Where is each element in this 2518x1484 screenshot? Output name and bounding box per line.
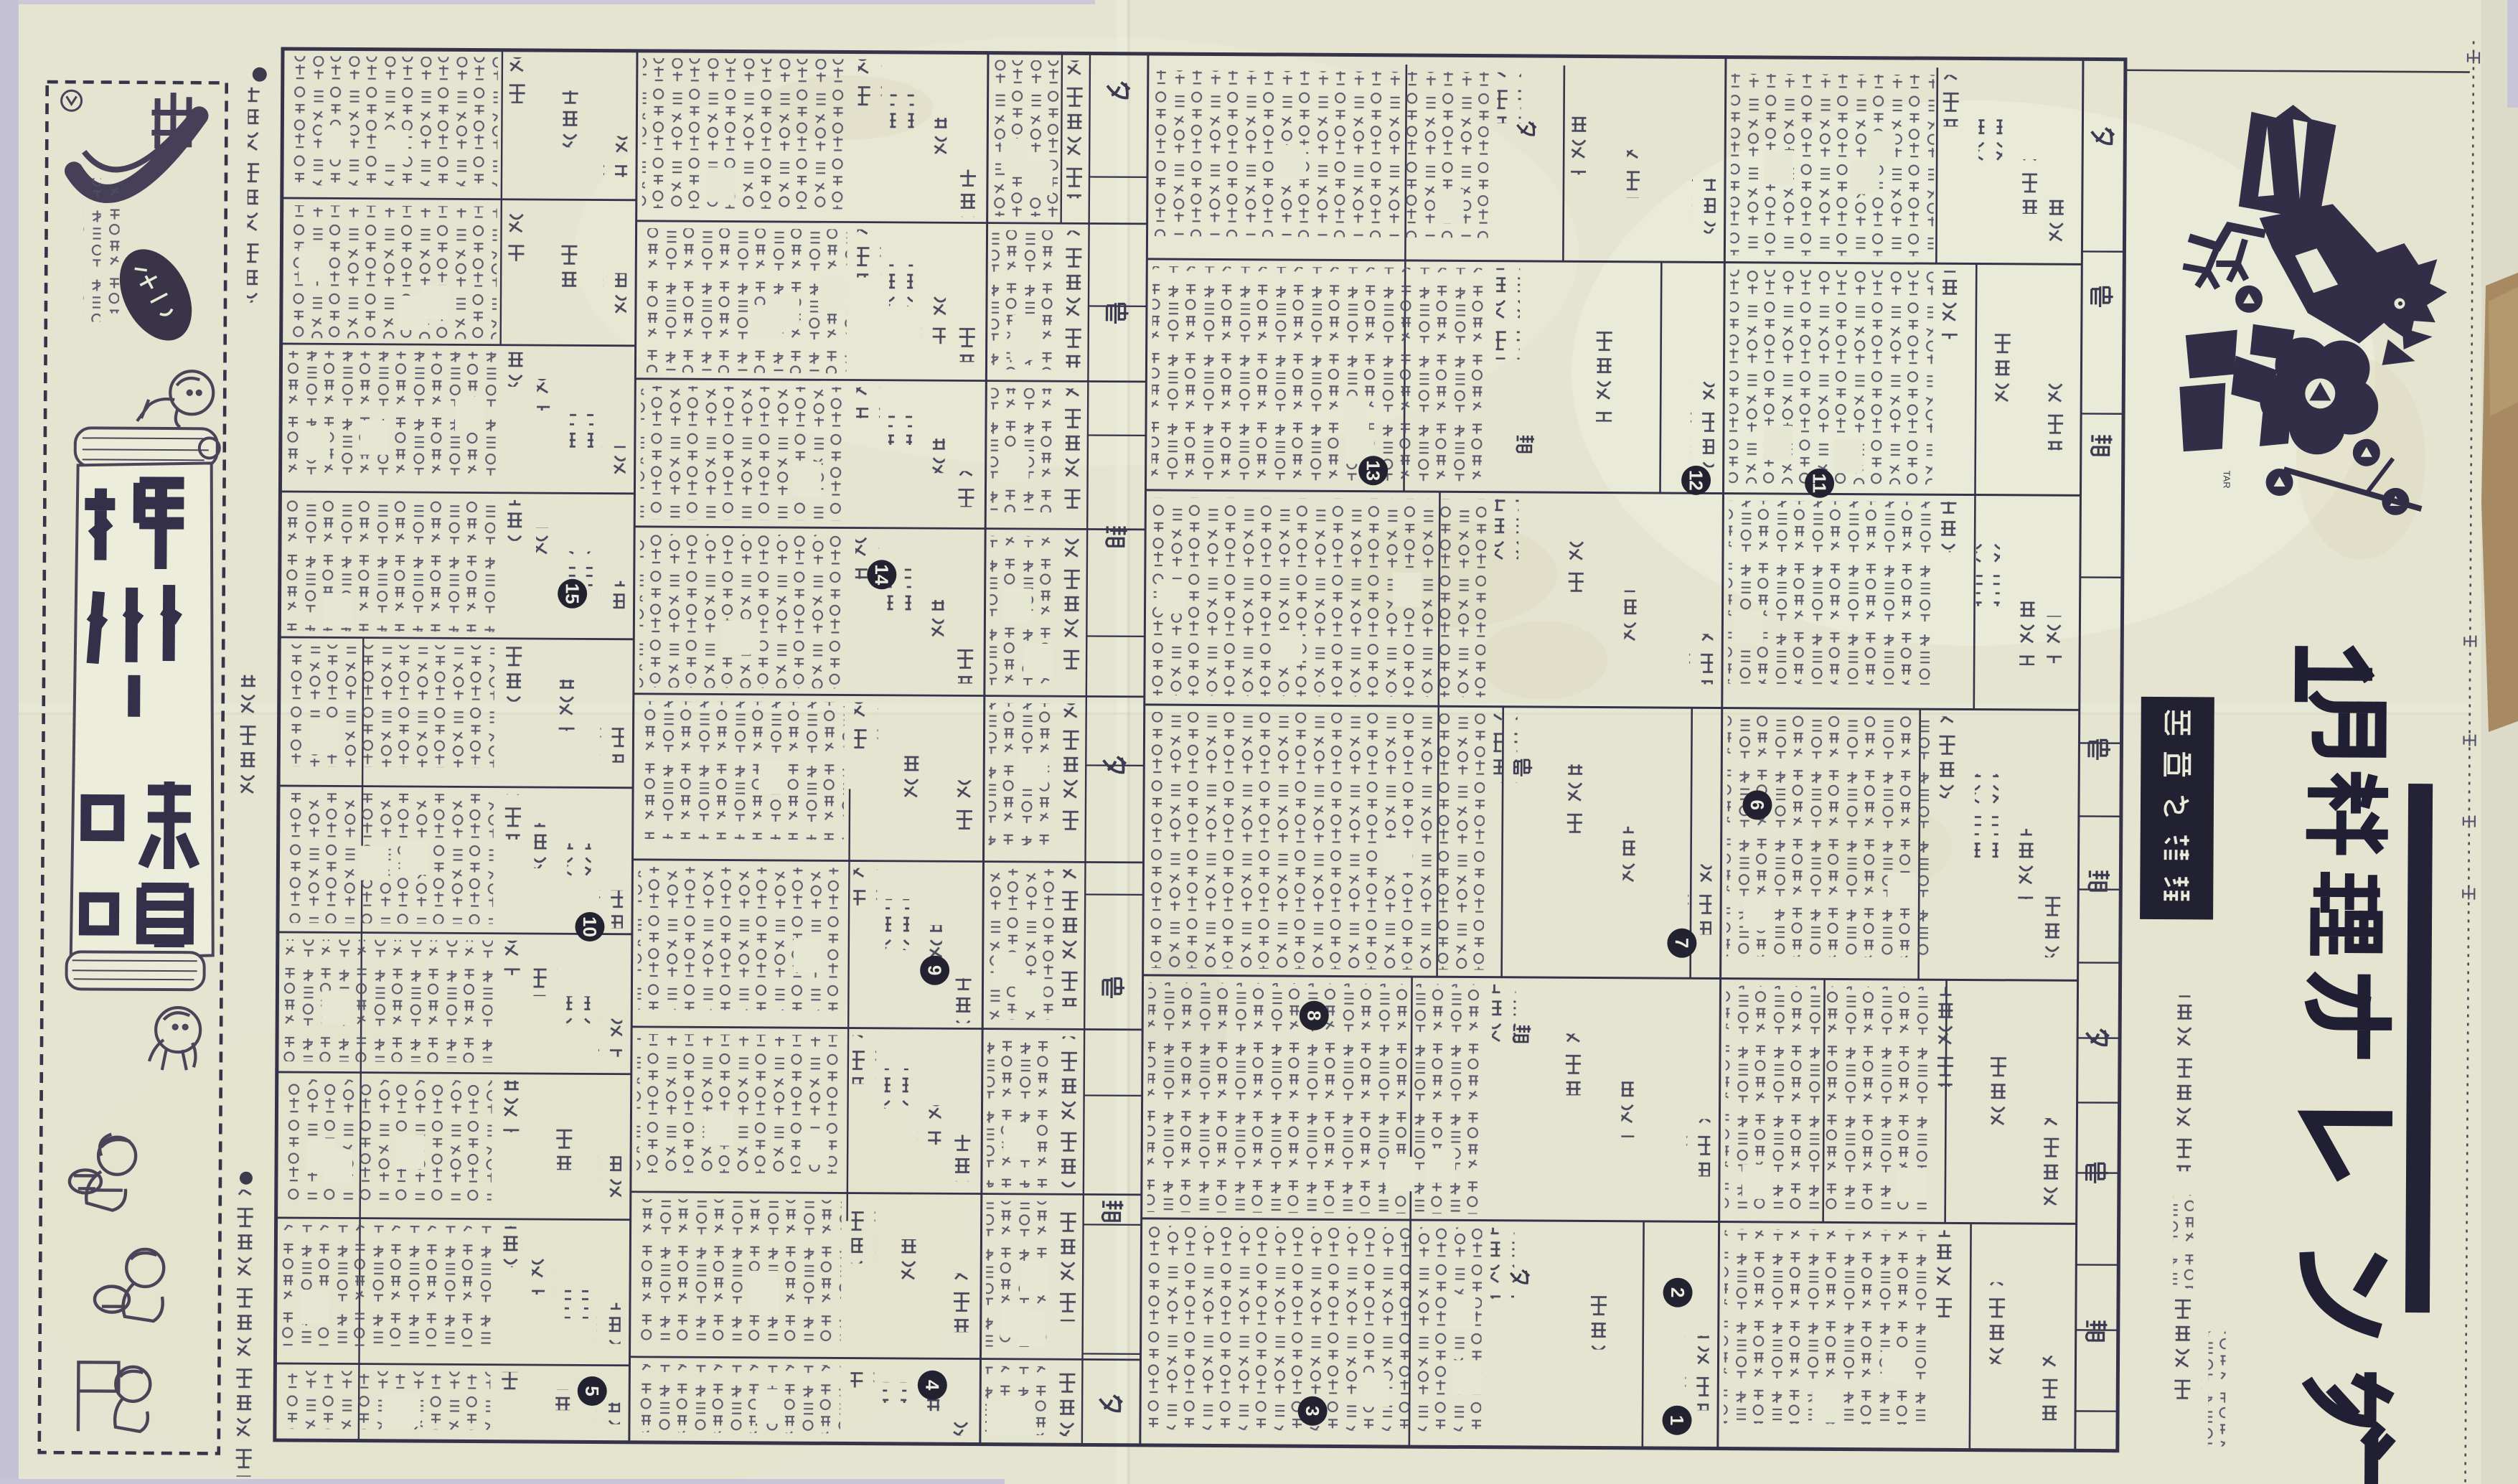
svg-text:11: 11	[1808, 473, 1830, 493]
svg-text:13: 13	[1363, 460, 1384, 481]
svg-text:9: 9	[924, 965, 946, 976]
svg-text:4: 4	[921, 1380, 943, 1391]
svg-text:8: 8	[1303, 1010, 1325, 1021]
svg-text:5: 5	[581, 1386, 603, 1396]
svg-text:TAR: TAR	[2222, 471, 2232, 489]
svg-text:6: 6	[1747, 799, 1768, 810]
svg-text:15: 15	[562, 583, 583, 604]
svg-text:7: 7	[1671, 938, 1693, 949]
svg-text:12: 12	[1685, 470, 1706, 491]
svg-text:1: 1	[1666, 1415, 1688, 1426]
svg-text:3: 3	[1302, 1406, 1323, 1417]
svg-text:2: 2	[1667, 1287, 1688, 1298]
svg-text:14: 14	[871, 564, 893, 586]
svg-text:10: 10	[579, 916, 601, 937]
